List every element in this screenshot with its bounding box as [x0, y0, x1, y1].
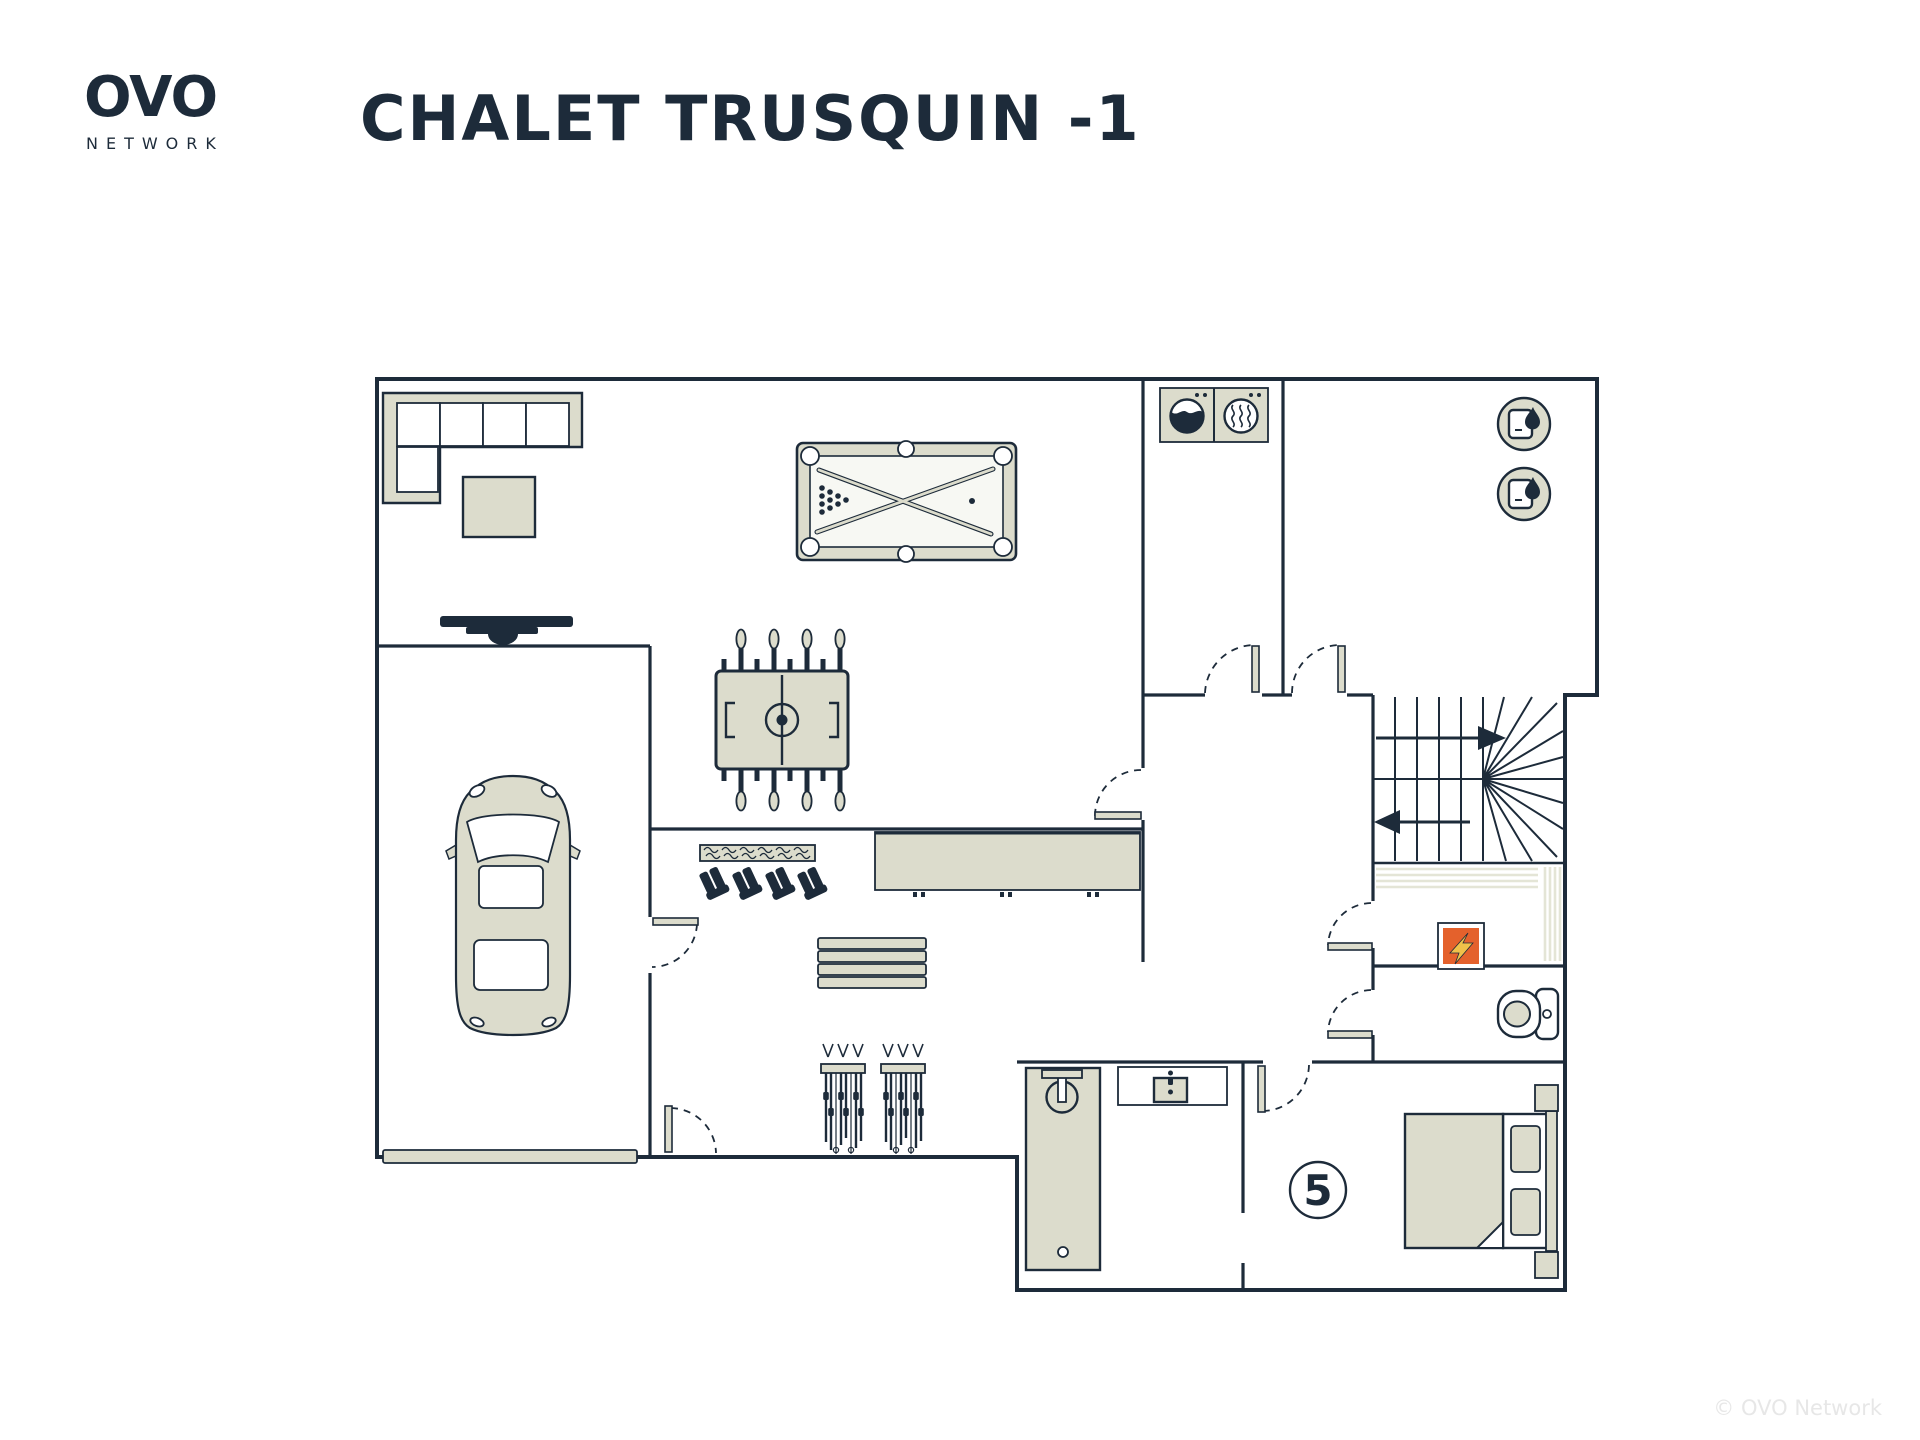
water-heater-icon-1 — [1498, 398, 1550, 450]
electrical-panel-icon — [1438, 923, 1484, 969]
laundry-door — [1205, 645, 1259, 693]
tv — [440, 616, 573, 645]
stairs-down-arrow — [1374, 810, 1470, 834]
counter — [875, 832, 1140, 897]
utility-nook-door — [1328, 903, 1372, 950]
toilet-icon — [1498, 989, 1558, 1039]
ski-rack-left — [821, 1044, 865, 1154]
games-room-door — [1095, 770, 1141, 819]
vanity-sink — [1118, 1067, 1227, 1105]
wc-door — [1328, 990, 1372, 1038]
garage-side-door — [652, 918, 698, 967]
bedroom-number-badge: 5 — [1290, 1162, 1346, 1218]
foosball-table — [716, 630, 848, 811]
svg-text:5: 5 — [1303, 1166, 1332, 1215]
garage-door — [383, 1150, 637, 1163]
bed — [1405, 1085, 1558, 1278]
laundry-appliances — [1160, 388, 1268, 442]
bedroom-door — [1258, 1065, 1309, 1112]
floor-plan-drawing: 5 — [0, 0, 1920, 1440]
copyright-text: © OVO Network — [1713, 1396, 1882, 1420]
boiler-room-door — [1292, 645, 1345, 693]
nightstand-bottom — [1535, 1252, 1558, 1278]
coffee-table — [463, 477, 535, 537]
cue-ball — [969, 498, 975, 504]
car — [446, 776, 580, 1035]
ski-room-exit-door — [665, 1106, 716, 1153]
stairs — [1373, 697, 1563, 961]
boot-warmer — [697, 845, 829, 901]
shower — [1026, 1068, 1100, 1270]
ski-rack-right — [881, 1044, 925, 1154]
water-heater-icon-2 — [1498, 468, 1550, 520]
slatted-bench — [818, 938, 926, 988]
pool-table — [797, 441, 1016, 562]
floor-plan-page: OVO NETWORK CHALET TRUSQUIN -1 — [0, 0, 1920, 1440]
nightstand-top — [1535, 1085, 1558, 1111]
